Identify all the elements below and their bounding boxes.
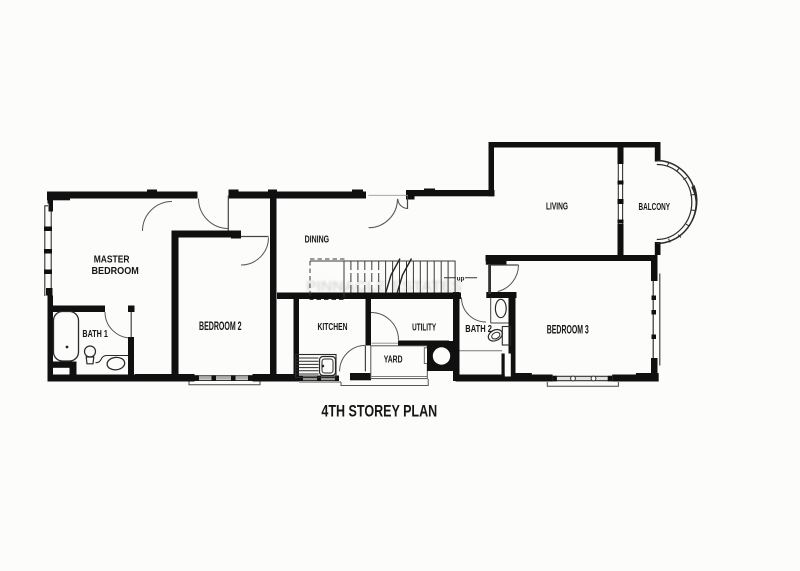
- svg-text:BEDROOM 3: BEDROOM 3: [547, 325, 589, 337]
- svg-text:4TH STOREY PLAN: 4TH STOREY PLAN: [321, 403, 437, 421]
- svg-text:BALCONY: BALCONY: [639, 202, 671, 213]
- svg-text:BATH 1: BATH 1: [82, 328, 108, 340]
- svg-text:UTILITY: UTILITY: [412, 322, 436, 334]
- svg-text:BEDROOM 2: BEDROOM 2: [199, 321, 242, 333]
- svg-text:PINNACLE ESTATES: PINNACLE ESTATES: [306, 278, 462, 295]
- svg-text:YARD: YARD: [384, 355, 403, 366]
- svg-text:KITCHEN: KITCHEN: [318, 321, 348, 333]
- svg-text:DINING: DINING: [305, 234, 330, 246]
- svg-text:MASTER: MASTER: [94, 253, 130, 265]
- svg-text:LIVING: LIVING: [546, 202, 568, 213]
- svg-text:BEDROOM: BEDROOM: [92, 265, 140, 277]
- svg-text:BATH 2: BATH 2: [465, 323, 492, 335]
